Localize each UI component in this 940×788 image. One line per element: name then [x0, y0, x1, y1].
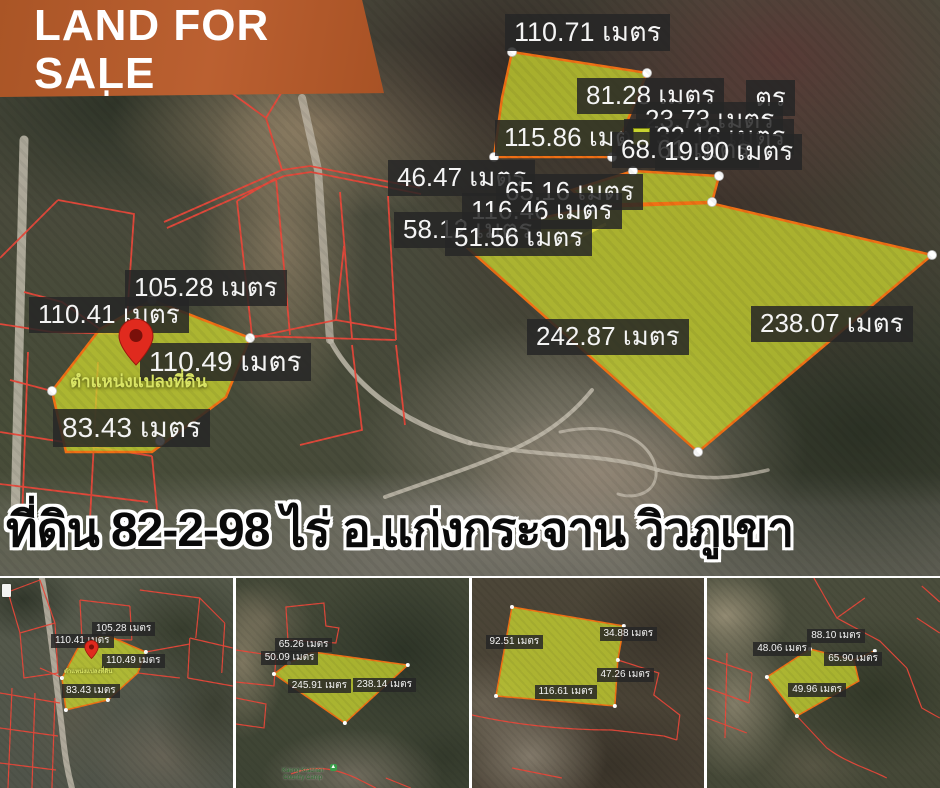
- pin-location-label: ตำแหน่งแปลงที่ดิน: [70, 368, 207, 395]
- location-pin-icon: [84, 640, 99, 664]
- measurement-label: 65.26 เมตร: [275, 638, 333, 652]
- land-sale-flyer: 110.71 เมตร81.28 เมตรตร23.73 เมตร115.86 …: [0, 0, 940, 788]
- measurement-label: 50.09 เมตร: [261, 651, 319, 665]
- thumbnail-map-3: 92.51 เมตร34.88 เมตร47.26 เมตร116.61 เมต…: [472, 578, 705, 788]
- measurement-label: 65.90 เมตร: [824, 652, 882, 666]
- measurement-label: 83.43 เมตร: [62, 684, 120, 698]
- poi-label: Kaeng Krachan Country Camp: [274, 768, 332, 782]
- measurement-label: 238.07 เมตร: [751, 306, 913, 342]
- thumbnail-row: 105.28 เมตร110.41 เมตร110.49 เมตร83.43 เ…: [0, 578, 940, 788]
- measurement-label: 116.61 เมตร: [535, 685, 598, 699]
- measurement-label: 83.43 เมตร: [53, 409, 210, 447]
- map-control: [2, 584, 11, 597]
- thumbnail-map-2: 65.26 เมตร50.09 เมตร245.91 เมตร238.14 เม…: [236, 578, 469, 788]
- measurement-label: 238.14 เมตร: [353, 678, 416, 692]
- campground-poi-icon: ▲: [330, 764, 337, 771]
- sale-banner: LAND FOR SALE นัดดูที่ 094-419-6696: [0, 0, 384, 97]
- main-satellite-map: 110.71 เมตร81.28 เมตรตร23.73 เมตร115.86 …: [0, 0, 940, 576]
- thumb3-graphics: [472, 578, 705, 788]
- pin-location-label: ตำแหน่งแปลงที่ดิน: [64, 666, 112, 676]
- measurement-label: 19.90 เมตร: [655, 134, 802, 170]
- measurement-label: 51.56 เมตร: [445, 220, 592, 256]
- measurement-label: 242.87 เมตร: [527, 319, 689, 355]
- location-pin-icon: [117, 318, 155, 371]
- thumbnail-map-4: 88.10 เมตร48.06 เมตร65.90 เมตร49.96 เมตร: [707, 578, 940, 788]
- measurement-label: 110.41 เมตร: [29, 297, 189, 333]
- measurement-label: 47.26 เมตร: [597, 668, 655, 682]
- measurement-label: 110.41 เมตร: [51, 634, 114, 648]
- measurement-label: 49.96 เมตร: [788, 683, 846, 697]
- headline-text: ที่ดิน 82-2-98 ไร่ อ.แก่งกระจาน วิวภูเขา: [6, 492, 793, 568]
- banner-title: LAND FOR SALE: [34, 2, 384, 98]
- measurement-label: 245.91 เมตร: [288, 679, 351, 693]
- thumb1-graphics: [0, 578, 233, 788]
- measurement-label: 88.10 เมตร: [807, 629, 865, 643]
- measurement-label: 110.71 เมตร: [505, 14, 670, 51]
- measurement-label: 92.51 เมตร: [486, 635, 544, 649]
- measurement-label: 48.06 เมตร: [753, 642, 811, 656]
- measurement-label: 34.88 เมตร: [600, 627, 658, 641]
- thumbnail-map-1: 105.28 เมตร110.41 เมตร110.49 เมตร83.43 เ…: [0, 578, 233, 788]
